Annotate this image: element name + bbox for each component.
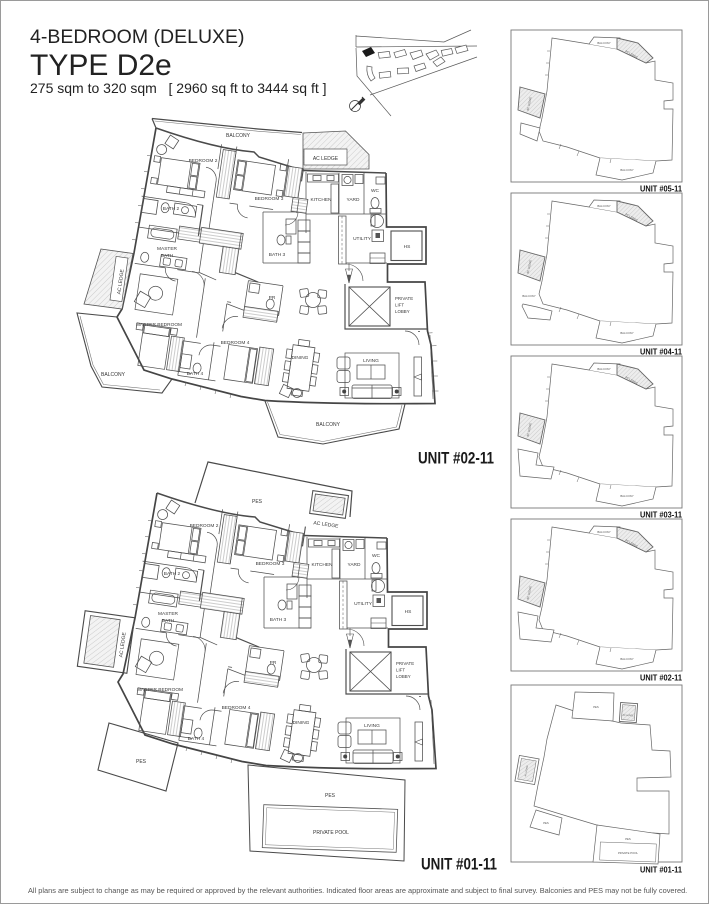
svg-text:PES: PES <box>252 499 263 505</box>
svg-text:BALCONY: BALCONY <box>316 422 341 428</box>
svg-text:UNIT #01-11: UNIT #01-11 <box>421 856 497 874</box>
svg-text:UNIT #02-11: UNIT #02-11 <box>640 673 682 683</box>
svg-text:AC LEDGE: AC LEDGE <box>118 631 128 658</box>
svg-text:UNIT #03-11: UNIT #03-11 <box>640 510 682 520</box>
svg-text:PES: PES <box>136 759 147 765</box>
svg-text:BALCONY: BALCONY <box>226 133 251 139</box>
svg-text:BALCONY: BALCONY <box>101 372 126 378</box>
svg-text:PRIVATE POOL: PRIVATE POOL <box>313 830 349 836</box>
svg-text:UNIT #02-11: UNIT #02-11 <box>418 450 494 468</box>
svg-text:PES: PES <box>625 837 631 841</box>
svg-text:PES: PES <box>593 705 599 709</box>
svg-text:PRIVATE POOL: PRIVATE POOL <box>618 851 639 855</box>
svg-text:AC LEDGE: AC LEDGE <box>313 156 339 162</box>
svg-text:UNIT #04-11: UNIT #04-11 <box>640 347 682 357</box>
svg-text:PES: PES <box>325 793 336 799</box>
svg-text:UNIT #05-11: UNIT #05-11 <box>640 184 682 194</box>
svg-text:PES: PES <box>543 821 549 825</box>
svg-text:UNIT #01-11: UNIT #01-11 <box>640 865 682 875</box>
